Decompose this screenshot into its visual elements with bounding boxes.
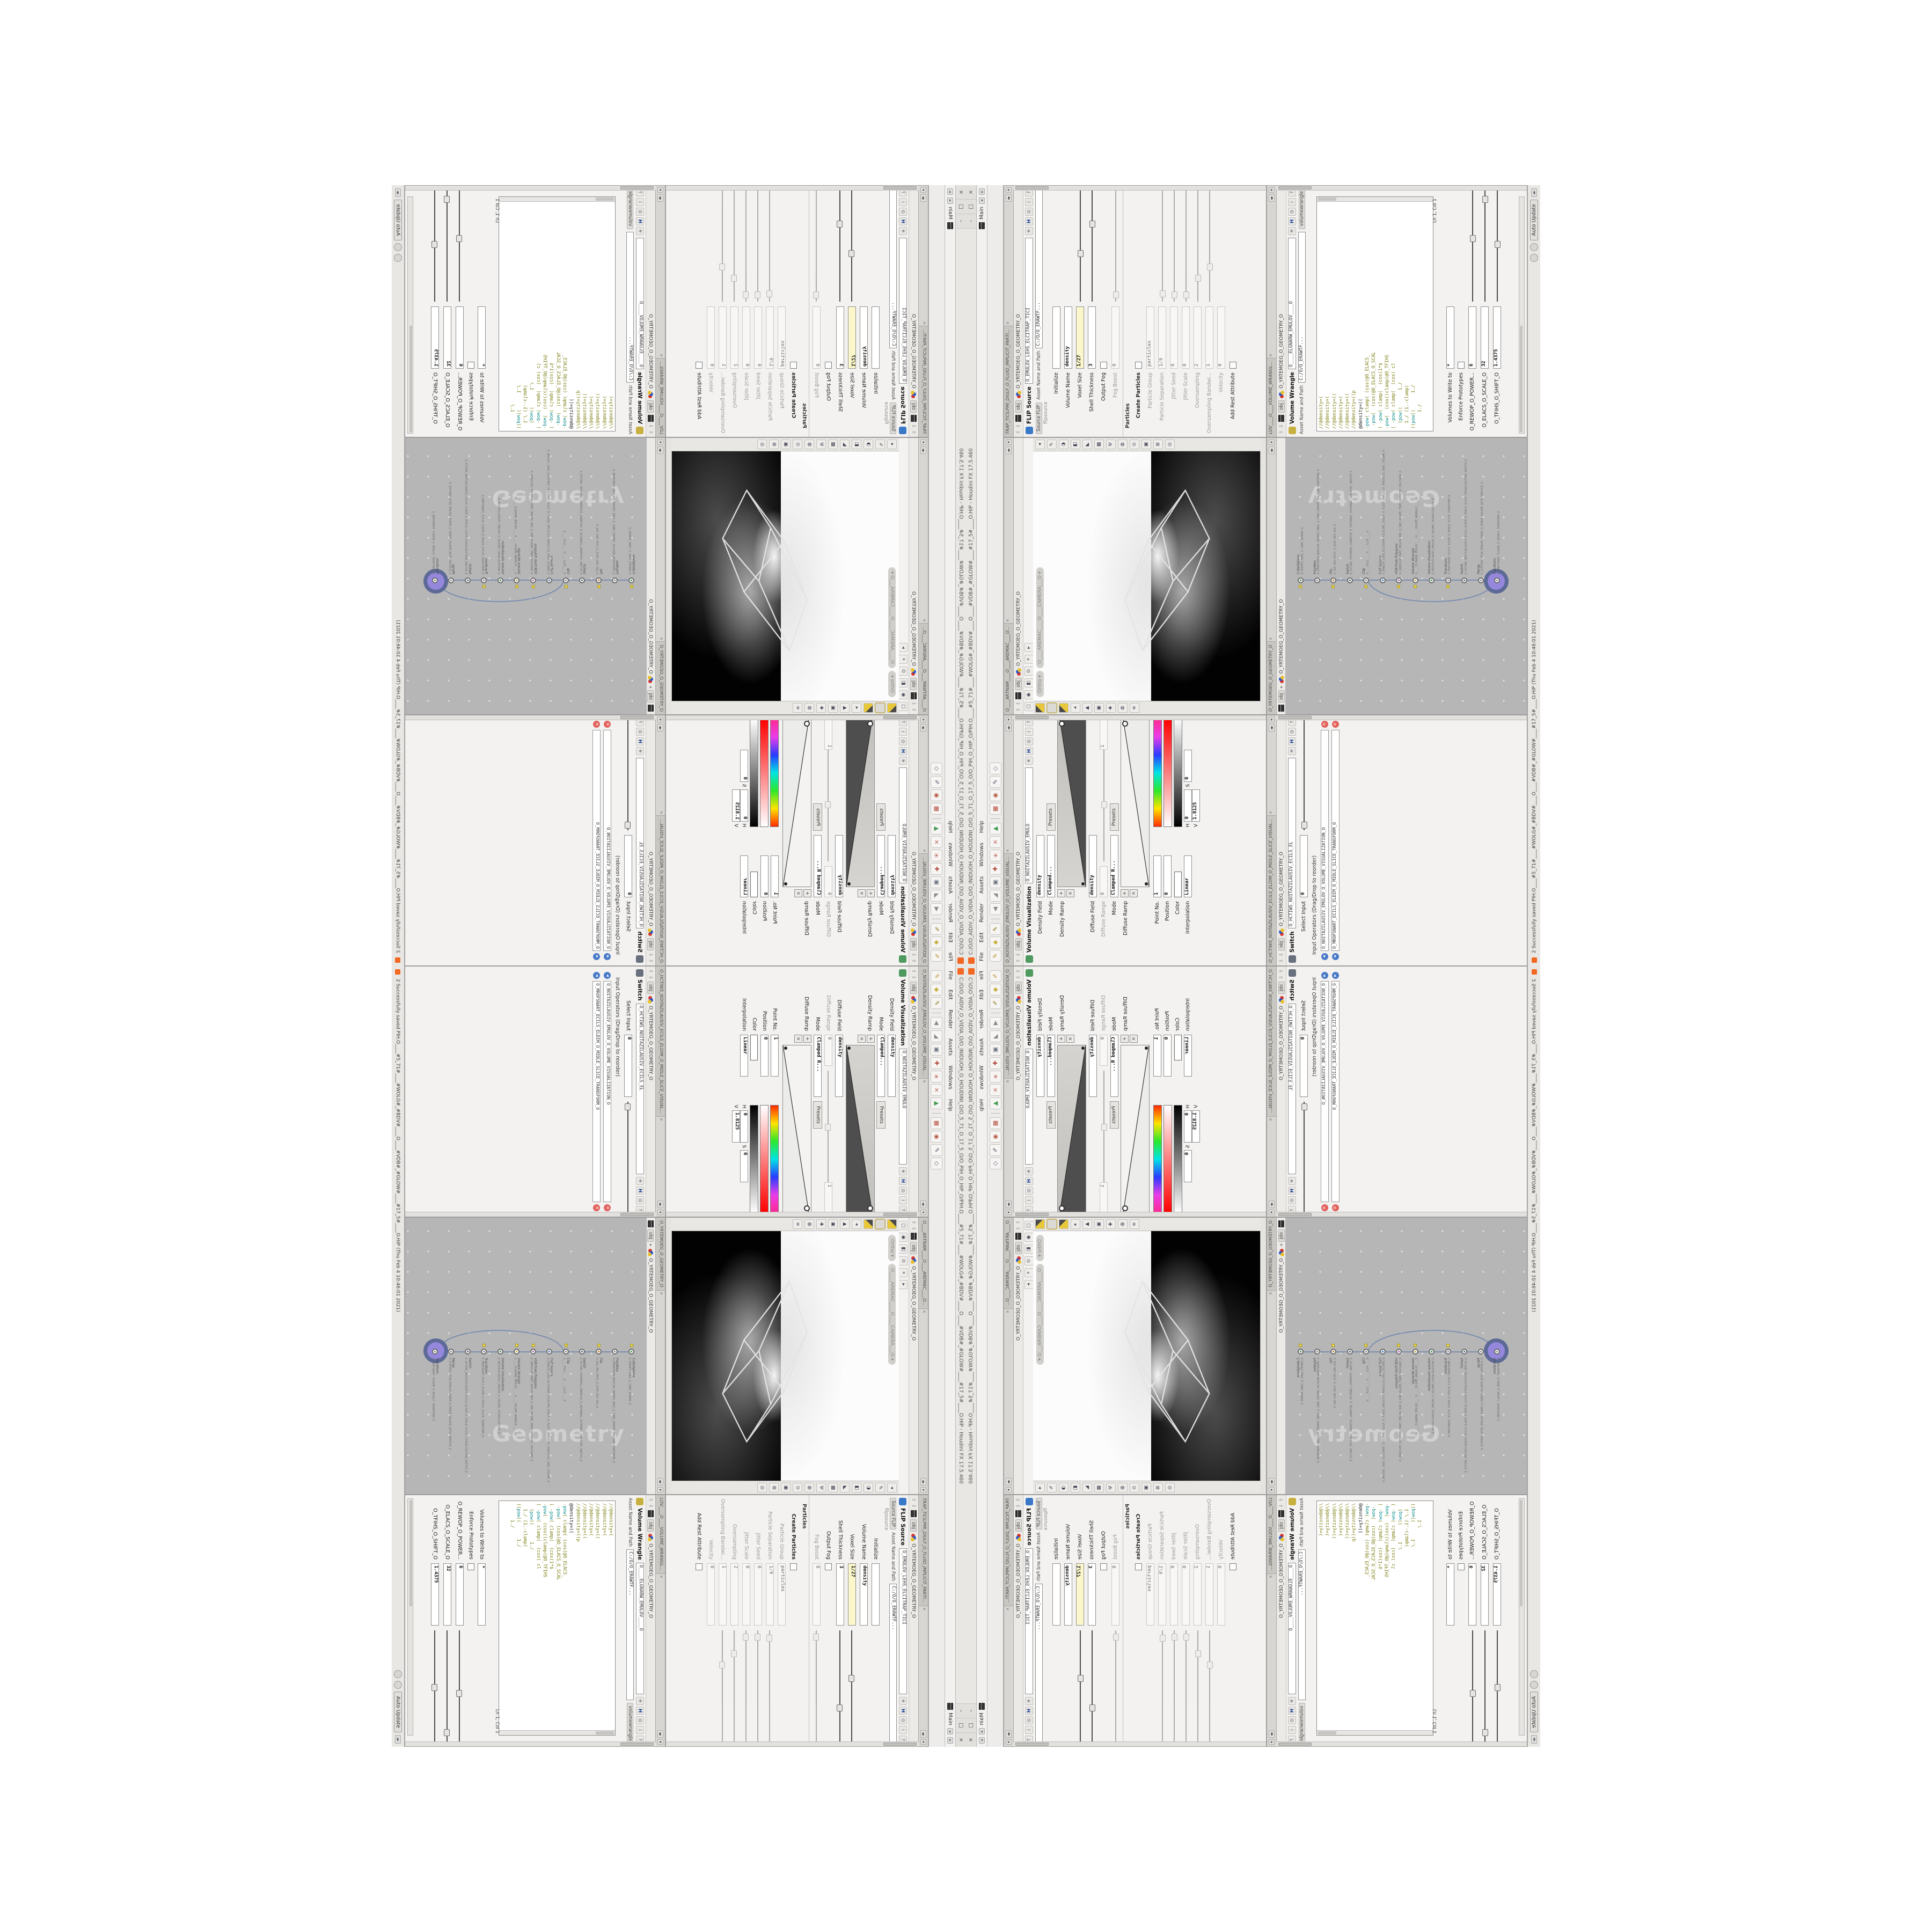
viewport-left-icon[interactable]: ◂	[1071, 703, 1080, 713]
flip-scrollbar[interactable]	[666, 1741, 919, 1746]
nav-down-icon[interactable]: ⇩	[911, 1504, 917, 1509]
nav-up-icon[interactable]: ⇧	[1016, 430, 1021, 434]
slider-handle[interactable]	[1160, 1635, 1166, 1642]
shelf-tool-icon[interactable]: ◇	[931, 763, 943, 774]
network-node[interactable]: FLIP SourceO_EMULOV_LEHS_ELCITRAP_TICILP…	[546, 450, 553, 583]
menu-edit[interactable]: Edit	[947, 985, 953, 1005]
shelf-tool-icon[interactable]: ◢	[931, 890, 943, 902]
param-slider[interactable]	[720, 1630, 727, 1743]
viewport-right-icon[interactable]: ▣	[1141, 1483, 1151, 1492]
viewport-right-icon[interactable]: ◑	[1059, 1483, 1069, 1492]
value-bar[interactable]	[750, 719, 758, 827]
magnifier-icon[interactable]: ⊙	[1025, 1716, 1033, 1724]
network-node[interactable]: VDB from PolygonsO_SNOGYLOP_MORF_EMULOV_…	[530, 471, 537, 583]
info-icon[interactable]: i	[899, 1726, 907, 1734]
network-tab[interactable]: O_YRTEMOEG_O_GEOMETRY_O	[656, 1218, 665, 1291]
viewport-top-icon[interactable]: ◉	[899, 1233, 908, 1242]
network-node[interactable]: PolyWireO_EMARFERIW_NOGYLOP_EREHPS_EBUC_…	[612, 469, 619, 583]
viewport-left-icon[interactable]	[1059, 1219, 1069, 1229]
param-value[interactable]: 0	[1217, 1563, 1225, 1626]
maximize-button[interactable]: □	[966, 1718, 976, 1732]
mode-value[interactable]: Clamped...	[1047, 1035, 1055, 1097]
param-checkbox[interactable]	[791, 1563, 797, 1570]
wrangle-name-field[interactable]: O____ELGNARW_EMULOV____O	[1288, 238, 1296, 369]
nav-down-icon[interactable]: ⇩	[911, 701, 917, 706]
reorder-icon[interactable]: ◂	[1332, 972, 1339, 979]
param-checkbox[interactable]	[791, 362, 797, 369]
shelf-tool-icon[interactable]: ▦	[931, 803, 943, 815]
node-path[interactable]: O_YRTEMOEG_O_GEOMETRY_O	[911, 1543, 917, 1618]
slider-handle[interactable]	[731, 1650, 737, 1657]
s-value[interactable]: 0	[740, 1150, 748, 1182]
reorder-icon[interactable]: ◂	[1321, 953, 1328, 960]
pane-split-icon[interactable]: ◂▸	[657, 724, 663, 731]
node-icon[interactable]	[1330, 1349, 1336, 1355]
viewport-right-icon[interactable]: ▣	[781, 440, 791, 449]
nav-up-icon[interactable]: ⇧	[1016, 1220, 1021, 1225]
shelf-tool-icon[interactable]: ◀	[990, 903, 1001, 915]
pane-split-icon[interactable]: ◂▸	[1269, 447, 1275, 454]
node-icon[interactable]	[1298, 577, 1304, 583]
ramp-point-start[interactable]	[847, 1046, 851, 1050]
menu-help[interactable]: Help	[979, 816, 985, 838]
vex-code-editor[interactable]: //@density=(//@density=(//@density=((//@…	[499, 1501, 616, 1736]
desktop-nav-right-icon[interactable]: ▸	[947, 188, 953, 195]
code-scrollbar[interactable]	[1317, 1730, 1433, 1735]
menu-render[interactable]: Render	[979, 898, 985, 927]
diffuse-range-slider[interactable]	[825, 750, 832, 861]
viewport-top-icon[interactable]: ⊙	[899, 667, 908, 676]
info-icon[interactable]: i	[899, 728, 907, 736]
shelf-tool-icon[interactable]: ✚	[990, 863, 1001, 875]
viewport-top-icon[interactable]: ⌖	[1024, 655, 1034, 664]
network-canvas[interactable]: Geometry CubeSphereO_EREHPS_EBUC_O_CUBE_…	[1285, 1218, 1527, 1494]
shelf-tool-icon[interactable]: ◉	[990, 789, 1001, 801]
node-path[interactable]: O_YRTEMOEG_O_GEOMETRY_O	[1016, 591, 1021, 666]
network-node[interactable]: ClipO____PILC____O____CLIP____O	[1363, 531, 1370, 583]
param-slider[interactable]	[731, 189, 738, 302]
menu-file[interactable]: File	[979, 947, 985, 966]
ramp2-del-icon[interactable]: ×	[794, 889, 802, 897]
mode-value[interactable]: Clamped...	[877, 835, 885, 897]
viewport-left-icon[interactable]: ▣	[1094, 703, 1104, 713]
context-chip[interactable]: obj	[911, 938, 917, 950]
ramp2-point-start[interactable]	[784, 1046, 787, 1050]
node-icon[interactable]	[1445, 577, 1451, 583]
ramp2-point-start[interactable]	[784, 882, 787, 885]
network-node[interactable]: TransformO_MROFSNART_TLUSER_O_RESULT_TRA…	[1494, 1349, 1501, 1421]
houdini-h-icon[interactable]: H	[1025, 747, 1033, 755]
context-chip[interactable]: obj	[1015, 1519, 1022, 1532]
pane-split-icon[interactable]: ◂▸	[657, 447, 663, 454]
network-node[interactable]: Volume VisualizationO_NOITAZILAUSIV_EMUL…	[1428, 1349, 1435, 1433]
pane-max-icon[interactable]: ▾	[1006, 1739, 1012, 1745]
tab-close-icon[interactable]: ×	[1004, 617, 1013, 624]
viewport-left-icon[interactable]: ≡	[793, 703, 802, 713]
node-icon[interactable]	[1478, 577, 1484, 583]
slider-handle[interactable]	[1078, 1675, 1084, 1682]
network-node[interactable]: SwitchO_HCTIWS_YRTEMOEG_LANRETXE_O_INTER…	[1346, 471, 1353, 583]
cook-refresh-icon[interactable]	[1530, 254, 1538, 262]
viewport-tab[interactable]: O____ARTNAM____O____AREMAC____O...	[1004, 1218, 1013, 1309]
pane-split-icon[interactable]: ◂▸	[920, 1201, 926, 1208]
slider-handle[interactable]	[767, 290, 773, 297]
nav-down-icon[interactable]: ⇩	[1279, 976, 1284, 980]
network-node[interactable]: SwitchO_HCTIWS_YRTEMOEG_LANRETXE_O_INTER…	[579, 1349, 586, 1461]
viewport-left-icon[interactable]	[1035, 703, 1045, 713]
nav-down-icon[interactable]: ⇩	[1016, 424, 1021, 428]
color-swatch[interactable]	[1174, 1035, 1182, 1060]
viewport-right-icon[interactable]: ✎	[875, 1483, 885, 1492]
network-path[interactable]: O_YRTEMOEG_O_GEOMETRY_O	[1279, 1258, 1284, 1333]
spare-value[interactable]: 6	[1468, 1563, 1476, 1626]
viewport-left-icon[interactable]: ◂	[1071, 1219, 1080, 1229]
node-icon[interactable]	[580, 1349, 586, 1355]
magnifier-icon[interactable]: ⊙	[636, 1196, 644, 1204]
v-value[interactable]: 1.8125	[732, 1110, 740, 1143]
select-input-slider[interactable]	[1300, 719, 1307, 830]
network-node[interactable]: TransformO_MROFSNART_ECILS_ELDIM_O_MIDLE…	[481, 1349, 488, 1437]
node-path[interactable]: O_YRTEMOEG_O_GEOMETRY_O	[648, 852, 654, 926]
param-value[interactable]: 0	[755, 306, 763, 369]
ramp2-point-end[interactable]	[1122, 1205, 1128, 1211]
tab-close-icon[interactable]: ×	[1267, 635, 1276, 642]
node-icon[interactable]	[1380, 1349, 1386, 1355]
viewport-right-icon[interactable]: ✎	[875, 440, 885, 449]
param-slider[interactable]	[1170, 189, 1177, 302]
ramp2-del-icon[interactable]: ×	[794, 1035, 802, 1043]
node-icon[interactable]	[1396, 1349, 1402, 1355]
network-node[interactable]: SwitchO_HCTIWS_YRTEMOEG_LANRETXE_O_INTER…	[1346, 1349, 1353, 1461]
magnifier-icon[interactable]: ⊙	[1025, 737, 1033, 745]
magnifier-icon[interactable]: ⊙	[1288, 1716, 1296, 1724]
houdini-h-icon[interactable]: H	[1025, 1177, 1033, 1185]
pane-max-icon[interactable]: ▾	[1269, 1487, 1275, 1492]
shelf-tool-icon[interactable]: ✎	[990, 923, 1001, 935]
diffuse-ramp-widget[interactable]	[782, 719, 811, 887]
spare-value[interactable]: 1.4375	[431, 306, 439, 369]
wrangle-tab[interactable]: LOV____O____VOLUME_WRANGL...	[1267, 358, 1276, 437]
node-icon[interactable]	[1413, 577, 1418, 583]
slider-handle[interactable]	[1172, 292, 1177, 299]
flip-name-field[interactable]: O_EMULOV_LEHS_ELCITRAP_TICI	[899, 238, 907, 384]
context-chip[interactable]: obj	[911, 1519, 917, 1532]
network-node[interactable]: VDB from PolygonsO_SNOGYLOP_MORF_EMULOV_…	[1395, 471, 1402, 583]
viewport-render[interactable]: Ortho ▾ O____AREMAC____O____CAMERA___O ▾	[1033, 1231, 1261, 1481]
param-slider[interactable]	[1206, 189, 1213, 302]
desktop-nav-right-icon[interactable]: ▸	[947, 1737, 953, 1744]
menu-file[interactable]: File	[947, 966, 953, 985]
viewport-right-icon[interactable]: ▩	[1094, 440, 1104, 449]
mode2-value[interactable]: Clamped R...	[814, 835, 822, 897]
v-value[interactable]: 1.8125	[1192, 1110, 1200, 1143]
auto-update-selector[interactable]: Auto Update	[394, 1692, 402, 1732]
houdini-h-icon[interactable]: H	[636, 1707, 644, 1715]
houdini-h-icon[interactable]: H	[899, 1177, 907, 1185]
spare-slider[interactable]	[1469, 1630, 1476, 1743]
node-icon[interactable]	[530, 1349, 536, 1355]
minimize-button[interactable]: –	[966, 214, 976, 229]
position-value[interactable]: 0	[1163, 855, 1172, 897]
node-path[interactable]: O_YRTEMOEG_O_GEOMETRY_O	[1016, 852, 1021, 926]
pane-split-icon[interactable]: ◂▸	[1006, 194, 1012, 202]
viewport-left-icon[interactable]: ◂	[852, 703, 861, 713]
hda-tab[interactable]: Source FLIP	[890, 402, 896, 434]
pane-max-icon[interactable]: ▾	[1006, 1210, 1012, 1215]
node-icon[interactable]	[1314, 577, 1320, 583]
presets2-button[interactable]: Presets	[1110, 1101, 1119, 1129]
wrangle-tab[interactable]: LOV____O____VOLUME_WRANGL...	[1267, 1495, 1276, 1574]
viewport-left-icon[interactable]: ▣	[1094, 1219, 1104, 1229]
shelf-tool-icon[interactable]: ▲	[931, 823, 943, 835]
ramp2-point-start[interactable]	[1145, 1046, 1148, 1050]
param-value[interactable]: 1/27	[1076, 1563, 1084, 1626]
shelf-tool-icon[interactable]: ＊	[990, 850, 1001, 861]
viewport-left-icon[interactable]	[887, 1219, 897, 1229]
network-node[interactable]: TransformO_MROFSNART_ECILS_ELDIM_O_MIDLE…	[481, 495, 488, 583]
flip-name-field[interactable]: O_EMULOV_LEHS_ELCITRAP_TICI	[899, 1548, 907, 1694]
select-input-slider[interactable]	[1300, 1102, 1307, 1213]
code-scrollbar[interactable]	[499, 197, 615, 202]
param-slider[interactable]	[1077, 1630, 1084, 1743]
menu-edit[interactable]: Edit	[947, 927, 953, 947]
viewport-right-icon[interactable]: ◑	[1059, 440, 1069, 449]
asset-path-field[interactable]: C:/O/O_ERAWTF...	[626, 1549, 634, 1700]
pane-max-icon[interactable]: ▾	[1006, 187, 1012, 193]
select-input-slider[interactable]	[625, 1102, 632, 1213]
value-bar[interactable]	[750, 1105, 758, 1213]
slider-handle[interactable]	[837, 221, 843, 228]
pane-max-icon[interactable]: ▾	[1269, 187, 1275, 193]
node-path[interactable]: O_YRTEMOEG_O_GEOMETRY_O	[1016, 1006, 1021, 1080]
viewport-right-icon[interactable]: ▩	[828, 1483, 838, 1492]
node-path[interactable]: O_YRTEMOEG_O_GEOMETRY_O	[911, 591, 917, 666]
slider-handle[interactable]	[755, 1634, 761, 1641]
switch-scrollbar[interactable]	[405, 715, 656, 720]
node-icon[interactable]	[1429, 1349, 1435, 1355]
pane-max-icon[interactable]: ▾	[657, 1487, 663, 1492]
viewport-right-icon[interactable]: ◂	[887, 1483, 897, 1492]
presets-button[interactable]: Presets	[1046, 1101, 1056, 1129]
param-slider[interactable]	[755, 189, 762, 302]
param-checkbox[interactable]	[696, 1563, 703, 1570]
density-field-value[interactable]: density	[1036, 835, 1044, 897]
node-path[interactable]: O_YRTEMOEG_O_GEOMETRY_O	[1279, 1543, 1284, 1618]
param-value[interactable]: 1/9	[1158, 306, 1166, 369]
shelf-tool-icon[interactable]: ✚	[990, 1057, 1001, 1069]
wrangle-hscrollbar[interactable]	[407, 196, 413, 434]
network-node[interactable]: PolyWireO_EMARFERIW_NOGYLOP_EREHPS_EBUC_…	[1314, 469, 1321, 583]
slider-handle[interactable]	[1183, 292, 1189, 299]
flip-name-field[interactable]: O_EMULOV_LEHS_ELCITRAP_TICI	[1025, 238, 1033, 384]
saturation-bar[interactable]	[760, 719, 769, 827]
context-chip[interactable]: obj	[648, 982, 654, 994]
node-path[interactable]: O_YRTEMOEG_O_GEOMETRY_O	[1016, 1266, 1021, 1341]
tab-close-icon[interactable]: ×	[656, 635, 665, 642]
desktop-nav-right-icon[interactable]: ▸	[979, 188, 985, 195]
tab-close-icon[interactable]: ×	[656, 809, 665, 816]
pane-max-icon[interactable]: ▾	[657, 717, 663, 722]
presets-button[interactable]: Presets	[877, 1101, 886, 1129]
param-value[interactable]: particles	[778, 306, 786, 369]
viewport-top-icon[interactable]: ◉	[899, 690, 908, 699]
position-value[interactable]: 0	[1163, 1035, 1172, 1077]
mode2-value[interactable]: Clamped R...	[1110, 1035, 1118, 1097]
network-tab[interactable]: O_YRTEMOEG_O_GEOMETRY_O	[1267, 1218, 1276, 1291]
density-ramp-widget[interactable]	[1057, 1045, 1086, 1213]
menu-render[interactable]: Render	[947, 898, 953, 927]
nav-up-icon[interactable]: ⇧	[648, 969, 654, 974]
pane-max-icon[interactable]: ▾	[657, 1210, 663, 1215]
network-node[interactable]: Volume WrangleO____ELGNARW_EMULOV____O__…	[1412, 1349, 1419, 1436]
viewport-right-icon[interactable]: ▣	[1141, 440, 1151, 449]
nav-down-icon[interactable]: ⇩	[911, 976, 917, 980]
minimize-button[interactable]: –	[966, 1703, 976, 1718]
density-ramp-widget[interactable]	[1057, 719, 1086, 887]
viewport-right-icon[interactable]: ⊞	[769, 1483, 779, 1492]
network-node[interactable]: TransformO_MROFSNART_ECILS_ELDIM_O_MIDLE…	[1445, 495, 1452, 583]
param-value[interactable]: 0	[1182, 306, 1190, 369]
node-path[interactable]: O_YRTEMOEG_O_GEOMETRY_O	[648, 1006, 654, 1080]
network-node[interactable]: Volume VisualizationO_NOITAZILAUSIV_EMUL…	[497, 499, 504, 583]
ramp-del-icon[interactable]: ×	[858, 1035, 866, 1043]
slider-handle[interactable]	[1495, 1684, 1501, 1691]
viewport-top-icon[interactable]: ▸	[1024, 1280, 1034, 1289]
switch-tab[interactable]: O_HCTIWS_NOITAZILAUSIV_ECILS_ELDIM_O_MID…	[1267, 816, 1276, 966]
shelf-tool-icon[interactable]: ✎	[990, 950, 1001, 962]
shelf-tool-icon[interactable]: ✎	[931, 1144, 943, 1156]
tab-close-icon[interactable]: ×	[656, 1291, 665, 1297]
ramp-point-end[interactable]	[867, 1205, 873, 1211]
slider-handle[interactable]	[1482, 196, 1488, 203]
network-node[interactable]: FLIP SourceO_EMULOV_LEHS_ELCITRAP_TICILP…	[1379, 450, 1386, 583]
param-value[interactable]: 3	[837, 306, 845, 369]
viewport-right-icon[interactable]: ◧	[1071, 1483, 1080, 1492]
viewport-top-icon[interactable]: ⊙	[1024, 1256, 1034, 1265]
param-value[interactable]: 0	[1170, 306, 1178, 369]
shelf-tool-icon[interactable]: ▣	[990, 876, 1001, 888]
density-field-value[interactable]: density	[888, 1035, 896, 1097]
mode2-value[interactable]: Clamped R...	[814, 1035, 822, 1097]
network-node[interactable]: PolyWireO_EMARFERIW_NOGYLOP_EREHPS_EBUC_…	[612, 1349, 619, 1463]
magnifier-icon[interactable]: ⊙	[1025, 208, 1033, 216]
network-canvas[interactable]: Geometry CubeSphereO_EREHPS_EBUC_O_CUBE_…	[1285, 438, 1527, 714]
node-icon[interactable]	[1494, 577, 1500, 583]
shelf-tool-icon[interactable]: ◉	[931, 789, 943, 801]
nav-down-icon[interactable]: ⇩	[648, 1504, 654, 1509]
gear-icon[interactable]: ✳	[899, 1167, 907, 1175]
network-node[interactable]: Volume WrangleO____ELGNARW_EMULOV____O__…	[514, 1349, 521, 1436]
tab-close-icon[interactable]: ×	[1267, 352, 1276, 358]
flip-name-field[interactable]: O_EMULOV_LEHS_ELCITRAP_TICI	[1025, 1548, 1033, 1694]
flip-tab[interactable]: TRAP_TICILPMI_DIULF_O_FLUID_IMPLICIT_PAR…	[1004, 326, 1013, 437]
param-value[interactable]: density	[1064, 1563, 1072, 1626]
network-node[interactable]: MergeO_ECAFRUS_HTIW_EMULOV_EGREM_O_MERGE…	[1477, 482, 1484, 583]
houdini-h-icon[interactable]: H	[1288, 1707, 1296, 1715]
network-node[interactable]: CubeSphereO_EREHPS_EBUC_O_CUBE_SPHERE_O	[628, 1349, 635, 1404]
spare-slider[interactable]	[1481, 1630, 1488, 1743]
viewport-left-icon[interactable]	[875, 1219, 885, 1229]
pane-split-icon[interactable]: ◂▸	[657, 1730, 663, 1738]
param-slider[interactable]	[1159, 189, 1166, 302]
reorder-icon[interactable]: ◂	[594, 953, 601, 960]
shelf-tool-icon[interactable]: ✚	[931, 863, 943, 875]
viewport-right-icon[interactable]: ⊙	[1130, 440, 1139, 449]
pane-split-icon[interactable]: ◂▸	[657, 1201, 663, 1208]
magnifier-icon[interactable]: ⊙	[1025, 1187, 1033, 1195]
pane-max-icon[interactable]: ▾	[1006, 717, 1012, 722]
param-slider[interactable]	[1182, 1630, 1189, 1743]
network-node[interactable]: VDB from PolygonsO_SNOGYLOP_MORF_EMULOV_…	[1395, 1349, 1402, 1461]
param-value[interactable]: 3	[837, 1563, 845, 1626]
flip-tab[interactable]: TRAP_TICILPMI_DIULF_O_FLUID_IMPLICIT_PAR…	[919, 1495, 928, 1606]
node-icon[interactable]	[1461, 1349, 1467, 1355]
projection-pill[interactable]: Ortho ▾	[888, 1235, 896, 1261]
node-icon[interactable]	[563, 577, 569, 583]
volumes-value[interactable]: *	[478, 306, 486, 369]
viewport-top-icon[interactable]: ⊙	[1024, 667, 1034, 676]
gear-icon[interactable]: ✳	[899, 227, 907, 235]
param-value[interactable]: 1/27	[1076, 306, 1084, 369]
hue-bar[interactable]	[1153, 719, 1162, 827]
param-value[interactable]: 1	[1205, 1563, 1213, 1626]
nav-down-icon[interactable]: ⇩	[1016, 701, 1021, 706]
viewport-tab[interactable]: O____ARTNAM____O____AREMAC____O...	[919, 1218, 928, 1309]
tab-close-icon[interactable]: ×	[919, 320, 928, 326]
node-icon[interactable]	[449, 577, 455, 583]
camera-pill[interactable]: O____AREMAC____O____CAMERA___O ▾	[1036, 1264, 1044, 1365]
ramp-point-end[interactable]	[1059, 721, 1065, 727]
param-value[interactable]: density	[860, 1563, 868, 1626]
slider-handle[interactable]	[1089, 221, 1095, 228]
presets2-button[interactable]: Presets	[1110, 803, 1119, 831]
magnifier-icon[interactable]: ⊙	[899, 1187, 907, 1195]
param-value[interactable]: 1/9	[766, 306, 774, 369]
param-checkbox[interactable]	[1230, 1563, 1236, 1570]
context-chip[interactable]: obj	[911, 1242, 917, 1254]
viewport-right-icon[interactable]: ⊞	[769, 440, 779, 449]
magnifier-icon[interactable]: ⊙	[899, 737, 907, 745]
wrangle-tab[interactable]: LOV____O____VOLUME_WRANGL...	[656, 358, 665, 437]
pane-max-icon[interactable]: ▾	[1269, 717, 1275, 722]
slider-handle[interactable]	[814, 292, 819, 299]
menu-render[interactable]: Render	[947, 1005, 953, 1034]
slider-handle[interactable]	[720, 264, 726, 270]
nav-up-icon[interactable]: ⇧	[1279, 958, 1284, 963]
network-node[interactable]: ClipO____PILC____O____CLIP____O	[1363, 1349, 1370, 1401]
viewport-tab[interactable]: O____ARTNAM____O____AREMAC____O...	[919, 623, 928, 714]
network-tab[interactable]: O_YRTEMOEG_O_GEOMETRY_O	[1267, 641, 1276, 714]
param-slider[interactable]	[1088, 1630, 1095, 1743]
slider-handle[interactable]	[1160, 290, 1166, 297]
spare-value[interactable]: 32	[1481, 1563, 1489, 1626]
viewport-left-icon[interactable]: ≡	[1130, 703, 1139, 713]
node-icon[interactable]	[596, 1349, 602, 1355]
h-value[interactable]: 0	[1184, 1110, 1192, 1143]
viewport-left-icon[interactable]	[1035, 1219, 1045, 1229]
menu-help[interactable]: Help	[979, 1094, 985, 1116]
diffuse-field-value[interactable]: density	[1089, 835, 1097, 897]
viewport-right-icon[interactable]: ◑	[863, 1483, 873, 1492]
magnifier-icon[interactable]: ⊙	[899, 208, 907, 216]
s-value[interactable]: 0	[1184, 1150, 1192, 1182]
projection-pill[interactable]: Ortho ▾	[888, 671, 896, 697]
pane-split-icon[interactable]: ◂▸	[920, 194, 926, 202]
network-node[interactable]: FileO_GES.M03.PETS_O_STEP.M03.SEG_O	[595, 524, 602, 583]
shelf-tool-icon[interactable]: ×	[931, 1084, 943, 1096]
reorder-icon[interactable]: ◂	[594, 972, 601, 979]
param-slider[interactable]	[1206, 1630, 1213, 1743]
